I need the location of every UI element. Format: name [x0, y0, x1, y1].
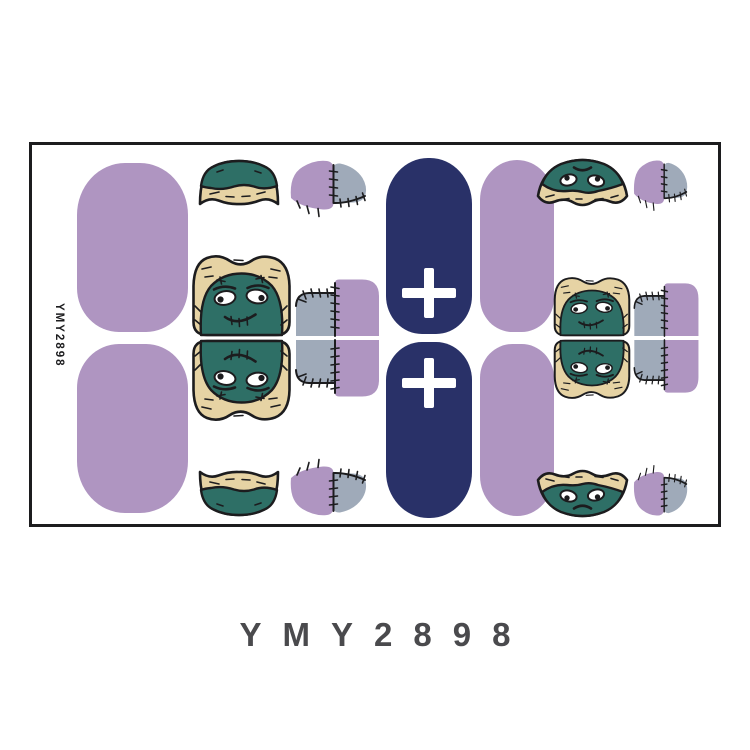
nail-frankenstein-face-middle-left-top	[190, 248, 293, 336]
nail-plain-purple-bottom-left	[77, 344, 188, 513]
nail-patch-middle-left-bottom	[293, 340, 381, 398]
nail-tip-patch-bottom-right	[632, 468, 690, 518]
product-code-caption: YMY2898	[0, 616, 750, 654]
nail-tip-frankenstein-hair-top	[197, 158, 281, 210]
nail-patch-middle-right-bottom	[632, 340, 700, 394]
plus-cross-icon	[402, 268, 456, 318]
stitched-patch-illustration	[632, 282, 700, 336]
plus-cross-icon	[402, 358, 456, 408]
nail-frankenstein-face-middle-right-bottom	[552, 340, 632, 404]
frankenstein-hair-illustration	[197, 158, 281, 210]
sheet-code-vertical: YMY2898	[53, 303, 65, 368]
product-photo: YMY2898	[0, 0, 750, 750]
nail-plain-purple-top-left	[77, 163, 188, 332]
nail-tip-patch-top-right	[632, 158, 690, 208]
frankenstein-face-illustration	[190, 340, 293, 428]
nail-patch-middle-right-top	[632, 282, 700, 336]
frankenstein-face-illustration	[552, 340, 632, 404]
nail-patch-middle-left-top	[293, 278, 381, 336]
nail-tip-frankenstein-face-top-right	[535, 158, 630, 210]
frankenstein-hair-illustration	[197, 466, 281, 518]
stitched-patch-illustration	[632, 468, 690, 518]
nail-frankenstein-face-middle-right-top	[552, 272, 632, 336]
nail-frankenstein-face-middle-left-bottom	[190, 340, 293, 428]
stitched-patch-illustration	[293, 278, 381, 336]
nail-tip-frankenstein-face-bottom-right	[535, 466, 630, 518]
nail-tip-frankenstein-hair-bottom	[197, 466, 281, 518]
frankenstein-face-illustration	[535, 158, 630, 210]
nail-navy-cross-bottom	[386, 342, 472, 518]
frankenstein-face-illustration	[552, 272, 632, 336]
stitched-patch-illustration	[632, 158, 690, 208]
stitched-patch-illustration	[293, 340, 381, 398]
frankenstein-face-illustration	[535, 466, 630, 518]
stitched-patch-illustration	[288, 462, 370, 518]
stitched-patch-illustration	[632, 340, 700, 394]
stitched-patch-illustration	[288, 158, 370, 214]
nail-tip-patch-top-left	[288, 158, 370, 214]
sticker-sheet-card: YMY2898	[29, 142, 721, 527]
nail-tip-patch-bottom-left	[288, 462, 370, 518]
frankenstein-face-illustration	[190, 248, 293, 336]
nail-navy-cross-top	[386, 158, 472, 334]
